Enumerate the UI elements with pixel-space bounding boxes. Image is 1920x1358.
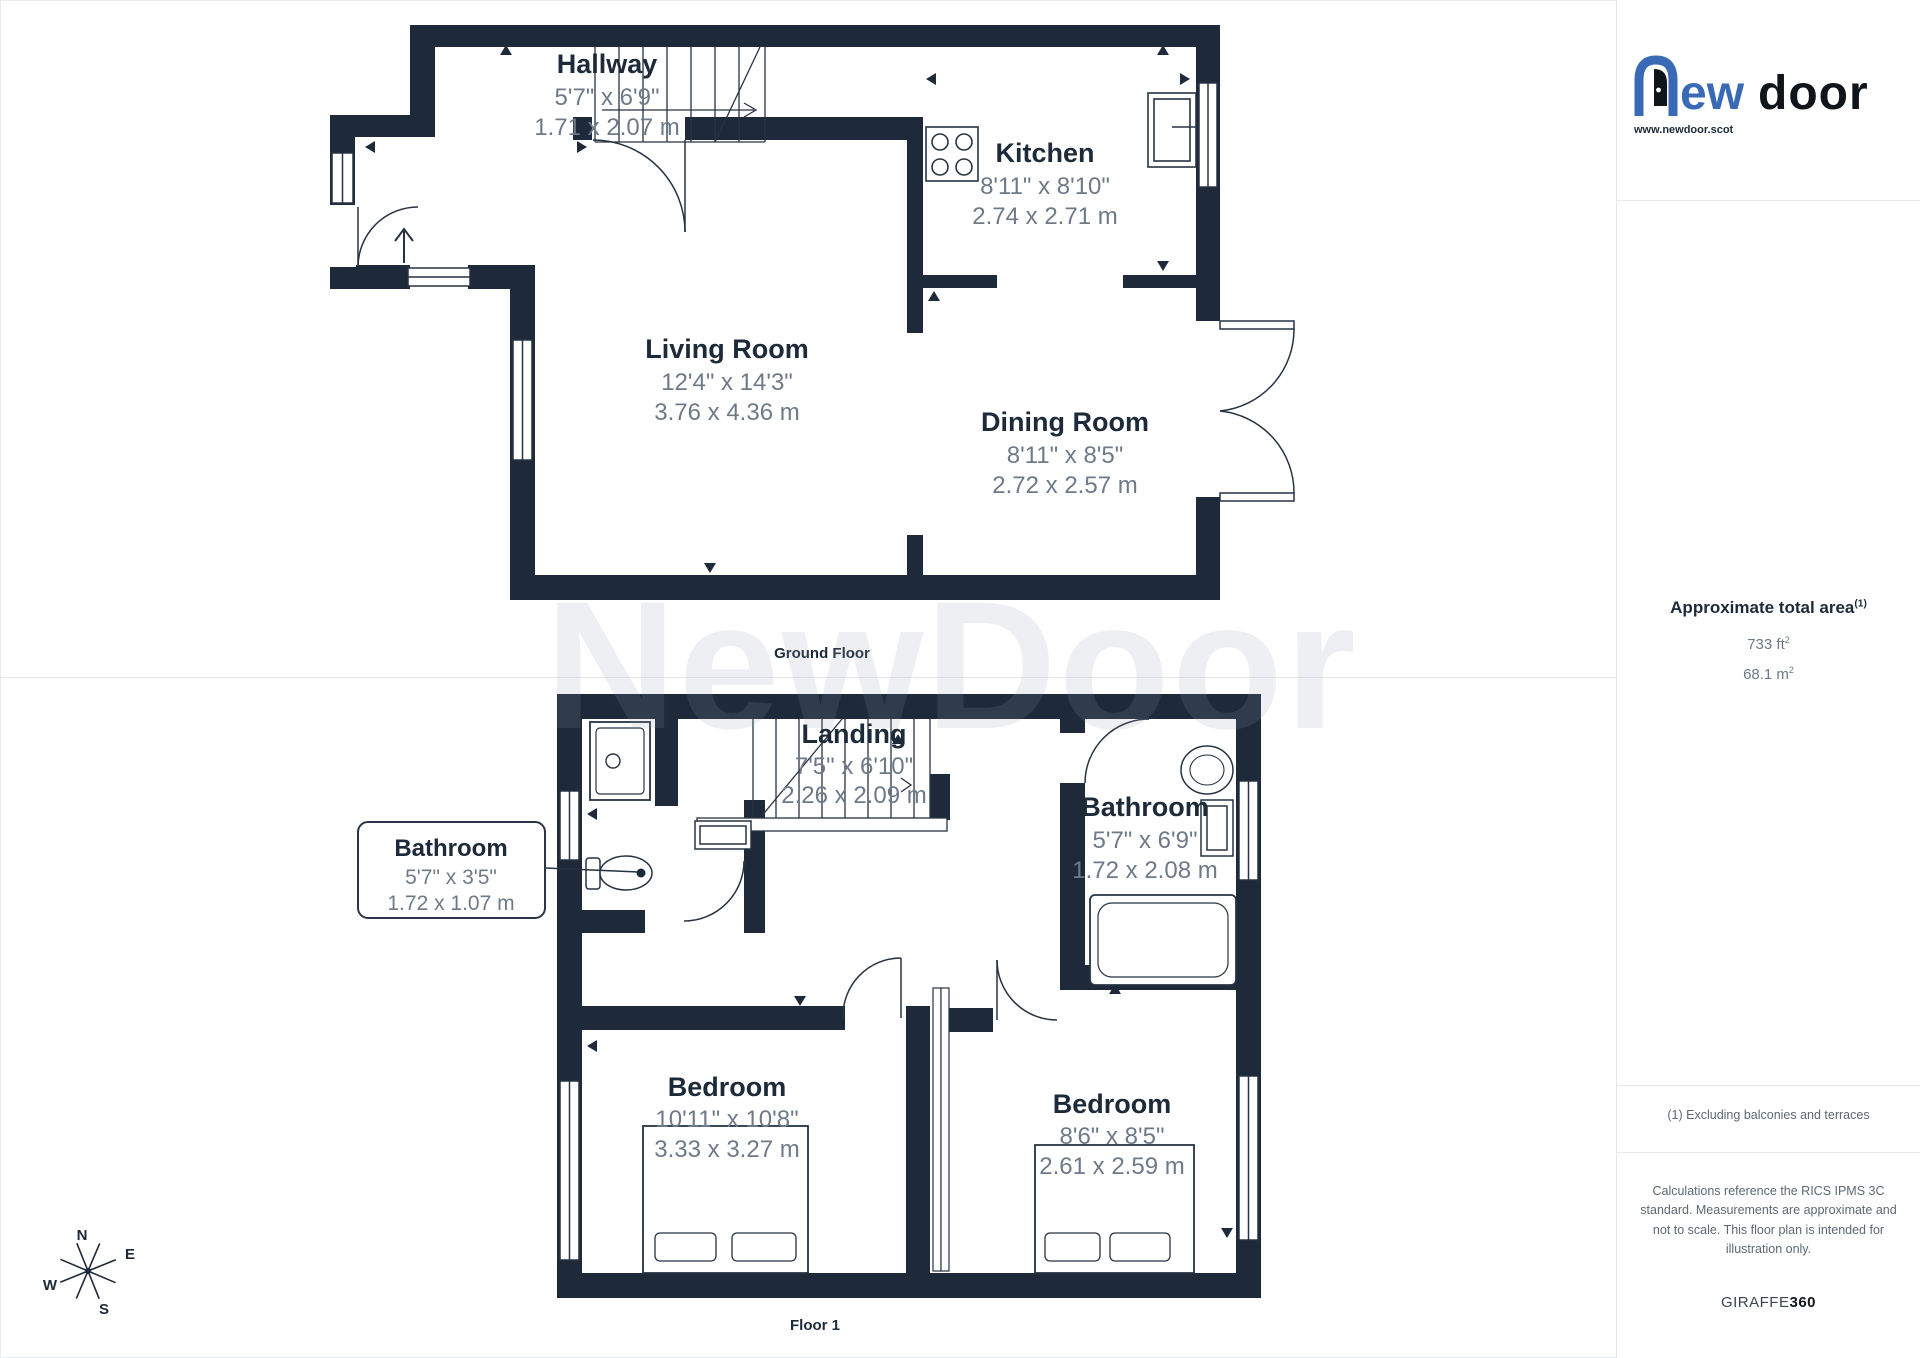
ground-floor-doors — [358, 140, 1294, 501]
compass-north-label: N — [77, 1227, 88, 1244]
bathtub — [1090, 895, 1236, 985]
room-label-living-room: Living Room — [645, 334, 809, 364]
sidebar-divider-2 — [1617, 1085, 1920, 1086]
room-label-hallway: Hallway — [557, 49, 658, 79]
area-m-superscript: 2 — [1789, 665, 1794, 675]
room-dim-hallway-imperial: 5'7" x 6'9" — [555, 84, 660, 111]
room-label-landing: Landing — [802, 719, 907, 749]
rics-disclaimer: Calculations reference the RICS IPMS 3C … — [1640, 1182, 1897, 1260]
door-arch-icon — [1633, 54, 1679, 118]
compass-center-dot — [85, 1268, 91, 1274]
room-dim-kitchen-metric: 2.74 x 2.71 m — [972, 203, 1117, 230]
ground-floor-walls — [330, 25, 1220, 600]
room-dim-bedroom1-metric: 3.33 x 3.27 m — [654, 1136, 799, 1163]
area-value-ft: 733 ft2 — [1617, 635, 1920, 653]
logo-text-new: ew — [1680, 70, 1744, 118]
giraffe360-brand: GIRAFFE360 — [1617, 1294, 1920, 1311]
room-label-bedroom2: Bedroom — [1053, 1089, 1172, 1119]
logo-text-door: door — [1758, 70, 1869, 118]
toilet — [586, 856, 652, 890]
room-dim-bathroom2-metric: 1.72 x 2.08 m — [1072, 857, 1217, 884]
bathroom1-sink — [695, 821, 751, 849]
ground-floor-plan: Hallway 5'7" x 6'9" 1.71 x 2.07 m Kitche… — [330, 15, 1330, 615]
room-dim-dining-imperial: 8'11" x 8'5" — [1007, 442, 1124, 469]
compass-south-label: S — [99, 1301, 109, 1318]
room-label-bathroom2: Bathroom — [1081, 792, 1209, 822]
logo-website: www.newdoor.scot — [1634, 124, 1733, 136]
kitchen-sink — [1148, 93, 1196, 167]
floor1-plan: Landing 7'5" x 6'10" 2.26 x 2.09 m Bathr… — [345, 688, 1285, 1318]
room-dim-hallway-metric: 1.71 x 2.07 m — [534, 114, 679, 141]
floor-divider-line — [0, 677, 1616, 678]
shower — [590, 722, 650, 800]
room-dim-landing-metric: 2.26 x 2.09 m — [781, 782, 926, 809]
room-dim-bedroom1-imperial: 10'11" x 10'8" — [655, 1106, 798, 1133]
callout-dim-bathroom1-metric: 1.72 x 1.07 m — [387, 892, 514, 915]
compass-rose: N E S W — [38, 1226, 148, 1321]
area-m-text: 68.1 m — [1743, 666, 1789, 683]
floor1-caption: Floor 1 — [705, 1317, 925, 1334]
room-label-kitchen: Kitchen — [995, 138, 1094, 168]
room-dim-kitchen-imperial: 8'11" x 8'10" — [980, 173, 1110, 200]
approximate-total-area-title: Approximate total area(1) — [1617, 598, 1920, 618]
compass-west-label: W — [43, 1277, 58, 1294]
room-dim-dining-metric: 2.72 x 2.57 m — [992, 472, 1137, 499]
hob — [926, 127, 978, 181]
room-dim-bedroom2-imperial: 8'6" x 8'5" — [1060, 1123, 1165, 1150]
giraffe-text: GIRAFFE — [1721, 1294, 1790, 1311]
room-dim-landing-imperial: 7'5" x 6'10" — [795, 753, 913, 780]
room-dim-living-imperial: 12'4" x 14'3" — [661, 369, 793, 396]
entry-arrow — [395, 229, 413, 263]
room-label-bedroom1: Bedroom — [668, 1072, 787, 1102]
area-ft-text: 733 ft — [1747, 636, 1785, 653]
compass-east-label: E — [125, 1246, 135, 1263]
footnote-excluding-balconies: (1) Excluding balconies and terraces — [1627, 1108, 1910, 1122]
ground-floor-caption: Ground Floor — [712, 645, 932, 662]
sidebar-divider-3 — [1617, 1152, 1920, 1153]
room-dim-bedroom2-metric: 2.61 x 2.59 m — [1039, 1153, 1184, 1180]
wardrobe — [933, 988, 949, 1271]
area-value-m: 68.1 m2 — [1617, 665, 1920, 683]
area-title-superscript: (1) — [1854, 598, 1866, 609]
bathroom2-sink — [1181, 746, 1233, 794]
newdoor-logo: ew door — [1633, 54, 1869, 118]
callout-dim-bathroom1-imperial: 5'7" x 3'5" — [405, 866, 497, 889]
area-ft-superscript: 2 — [1785, 635, 1790, 645]
sidebar-divider-1 — [1617, 200, 1920, 201]
room-label-dining-room: Dining Room — [981, 407, 1149, 437]
giraffe-360-text: 360 — [1789, 1294, 1816, 1311]
room-dim-bathroom2-imperial: 5'7" x 6'9" — [1093, 827, 1198, 854]
callout-label-bathroom1: Bathroom — [394, 835, 507, 862]
area-title-text: Approximate total area — [1670, 598, 1854, 617]
room-dim-living-metric: 3.76 x 4.36 m — [654, 399, 799, 426]
